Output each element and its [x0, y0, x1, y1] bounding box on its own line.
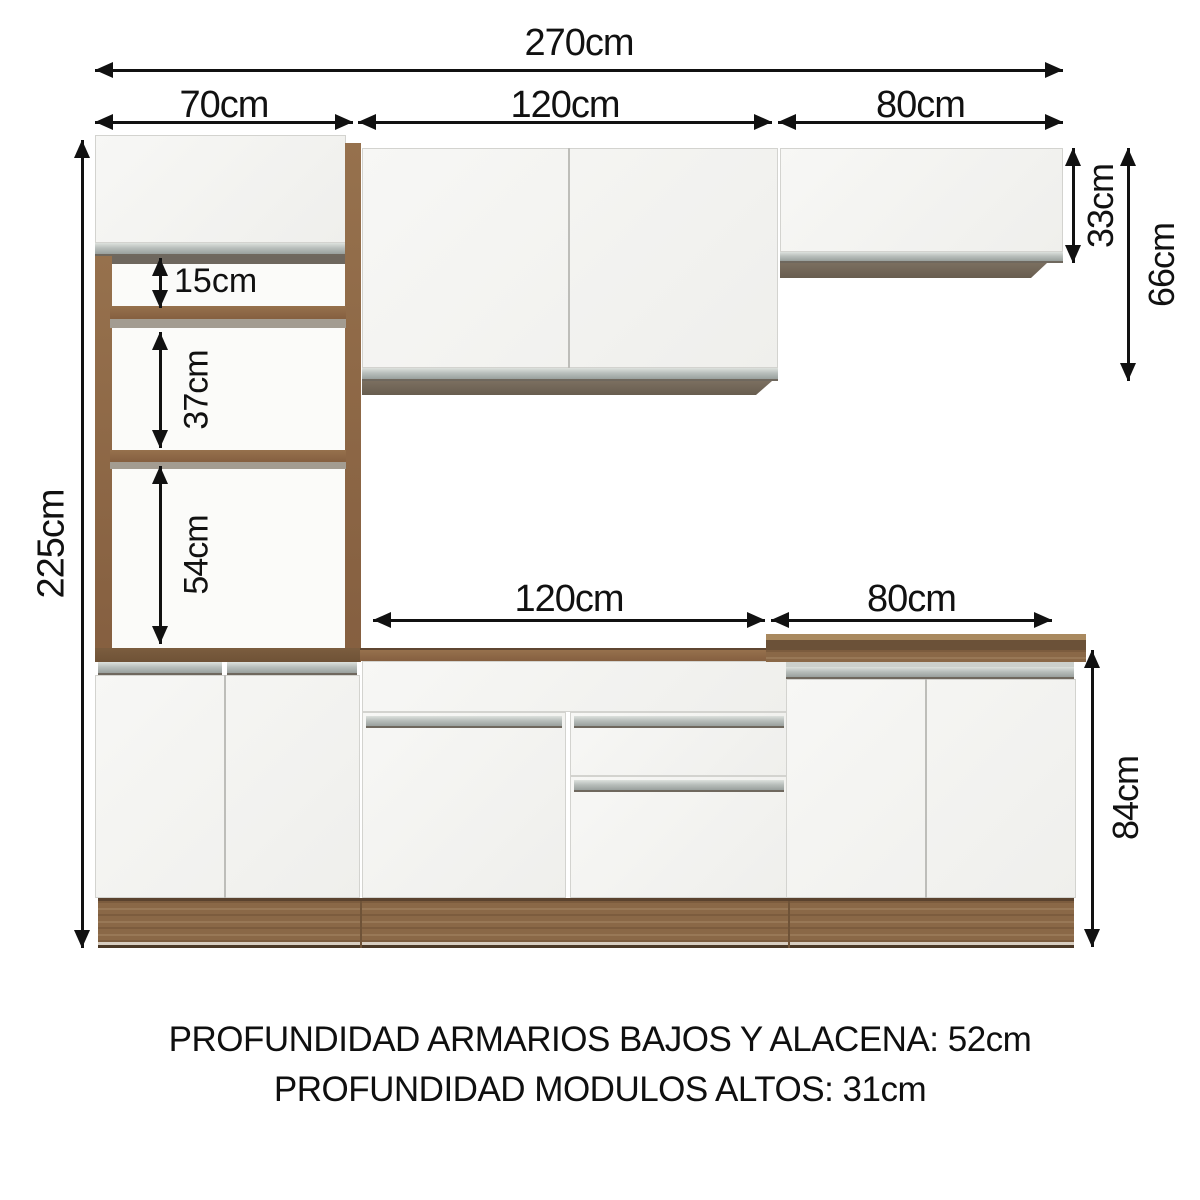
shelf-2	[110, 450, 346, 462]
dim-shelf-gap-top-label: 15cm	[174, 262, 257, 301]
dim-total-height-line	[81, 140, 84, 948]
dim-arrowhead-up-icon	[1120, 148, 1136, 166]
dim-arrowhead-right-icon	[335, 114, 353, 130]
shelf-1-shadow	[110, 319, 346, 328]
dim-total-width-line	[95, 69, 1063, 72]
dim-arrowhead-up-icon	[74, 140, 90, 158]
dim-arrowhead-up-icon	[1065, 148, 1081, 166]
dim-upper-mid-width-line	[358, 121, 772, 124]
dim-shelf-gap-bottom-line	[159, 466, 162, 644]
dim-arrowhead-left-icon	[95, 62, 113, 78]
plinth-seam	[360, 901, 362, 948]
dim-shelf-gap-bottom-label: 54cm	[178, 515, 217, 594]
dim-arrowhead-down-icon	[1120, 363, 1136, 381]
dim-arrowhead-down-icon	[152, 430, 168, 448]
wall-cabinet-120-bottom-shadow	[362, 381, 772, 395]
dim-arrowhead-down-icon	[152, 626, 168, 644]
shelf-2-shadow	[110, 462, 346, 469]
base-120-false-front	[362, 661, 788, 712]
dim-arrowhead-left-icon	[95, 114, 113, 130]
dim-base-right-width-line	[771, 619, 1052, 622]
wall-cabinet-120-door-divider	[568, 148, 570, 368]
base-80-door-divider	[925, 679, 927, 898]
wall-cabinet-80-handle	[780, 252, 1063, 263]
dim-arrowhead-up-icon	[152, 332, 168, 350]
base-80-door-handles	[786, 667, 1074, 679]
dim-arrowhead-down-icon	[1084, 929, 1100, 947]
kitchen-dimension-diagram: 270cm 70cm 120cm 80cm 225cm 15cm 37cm 54…	[0, 0, 1200, 1200]
dim-arrowhead-right-icon	[747, 612, 765, 628]
plinth	[98, 898, 1074, 948]
dim-arrowhead-left-icon	[771, 612, 789, 628]
dim-arrowhead-down-icon	[152, 290, 168, 308]
base-120-top-edge	[360, 648, 790, 661]
dim-total-width-label: 270cm	[95, 22, 1063, 65]
dim-base-mid-width-line	[373, 619, 765, 622]
footer-depth-line-1: PROFUNDIDAD ARMARIOS BAJOS Y ALACENA: 52…	[0, 1020, 1200, 1060]
base-120-drawer-top-handle	[574, 716, 784, 728]
dim-arrowhead-left-icon	[373, 612, 391, 628]
dim-arrowhead-up-icon	[152, 466, 168, 484]
countertop-front-edge	[766, 650, 1086, 662]
tall-unit-left-door-handle	[98, 662, 222, 675]
dim-arrowhead-down-icon	[1065, 245, 1081, 263]
plinth-bottom-edge	[98, 945, 1074, 948]
dim-total-height-label: 225cm	[31, 489, 74, 598]
dim-arrowhead-right-icon	[1045, 114, 1063, 130]
tall-unit-right-side-panel	[345, 143, 361, 662]
dim-base-mid-width-label: 120cm	[373, 578, 765, 621]
tall-unit-top-door-handle	[95, 243, 346, 256]
wall-cabinet-80-door	[780, 148, 1063, 252]
dim-arrowhead-up-icon	[1084, 650, 1100, 668]
dim-arrowhead-left-icon	[358, 114, 376, 130]
wall-cabinet-120-doors	[362, 148, 778, 368]
dim-base-right-width-label: 80cm	[771, 578, 1052, 621]
dim-upper-right-width-line	[778, 121, 1063, 124]
plinth-seam	[788, 901, 790, 948]
base-120-left-door	[362, 712, 566, 898]
dim-upper-cabinet-height-line	[1127, 148, 1130, 381]
tall-unit-top-door	[95, 135, 346, 243]
tall-unit-base-doors	[95, 675, 360, 898]
dim-arrowhead-right-icon	[754, 114, 772, 130]
dim-upper-right-height-label: 33cm	[1080, 164, 1122, 248]
tall-unit-right-door-handle	[227, 662, 357, 675]
base-120-drawer-bottom	[570, 776, 788, 898]
dim-arrowhead-down-icon	[74, 930, 90, 948]
dim-base-height-line	[1091, 650, 1094, 947]
base-120-drawer-bottom-handle	[574, 780, 784, 792]
dim-arrowhead-right-icon	[1045, 62, 1063, 78]
base-120-left-door-handle	[366, 716, 562, 728]
dim-shelf-gap-mid-label: 37cm	[178, 350, 217, 429]
tall-unit-base-top-edge	[95, 648, 360, 662]
wall-cabinet-80-bottom-shadow	[780, 263, 1047, 278]
dim-arrowhead-up-icon	[152, 258, 168, 276]
base-80-doors	[786, 679, 1076, 898]
dim-arrowhead-left-icon	[778, 114, 796, 130]
dim-upper-cabinet-height-label: 66cm	[1141, 223, 1183, 307]
dim-tall-unit-width-line	[95, 121, 353, 124]
countertop-bevel	[766, 640, 1086, 650]
shelf-1	[110, 306, 346, 319]
tall-unit-door-divider	[224, 675, 226, 898]
dim-base-height-label: 84cm	[1105, 756, 1147, 840]
dim-arrowhead-right-icon	[1034, 612, 1052, 628]
wall-cabinet-120-handle	[362, 368, 778, 381]
footer-depth-line-2: PROFUNDIDAD MODULOS ALTOS: 31cm	[0, 1070, 1200, 1110]
